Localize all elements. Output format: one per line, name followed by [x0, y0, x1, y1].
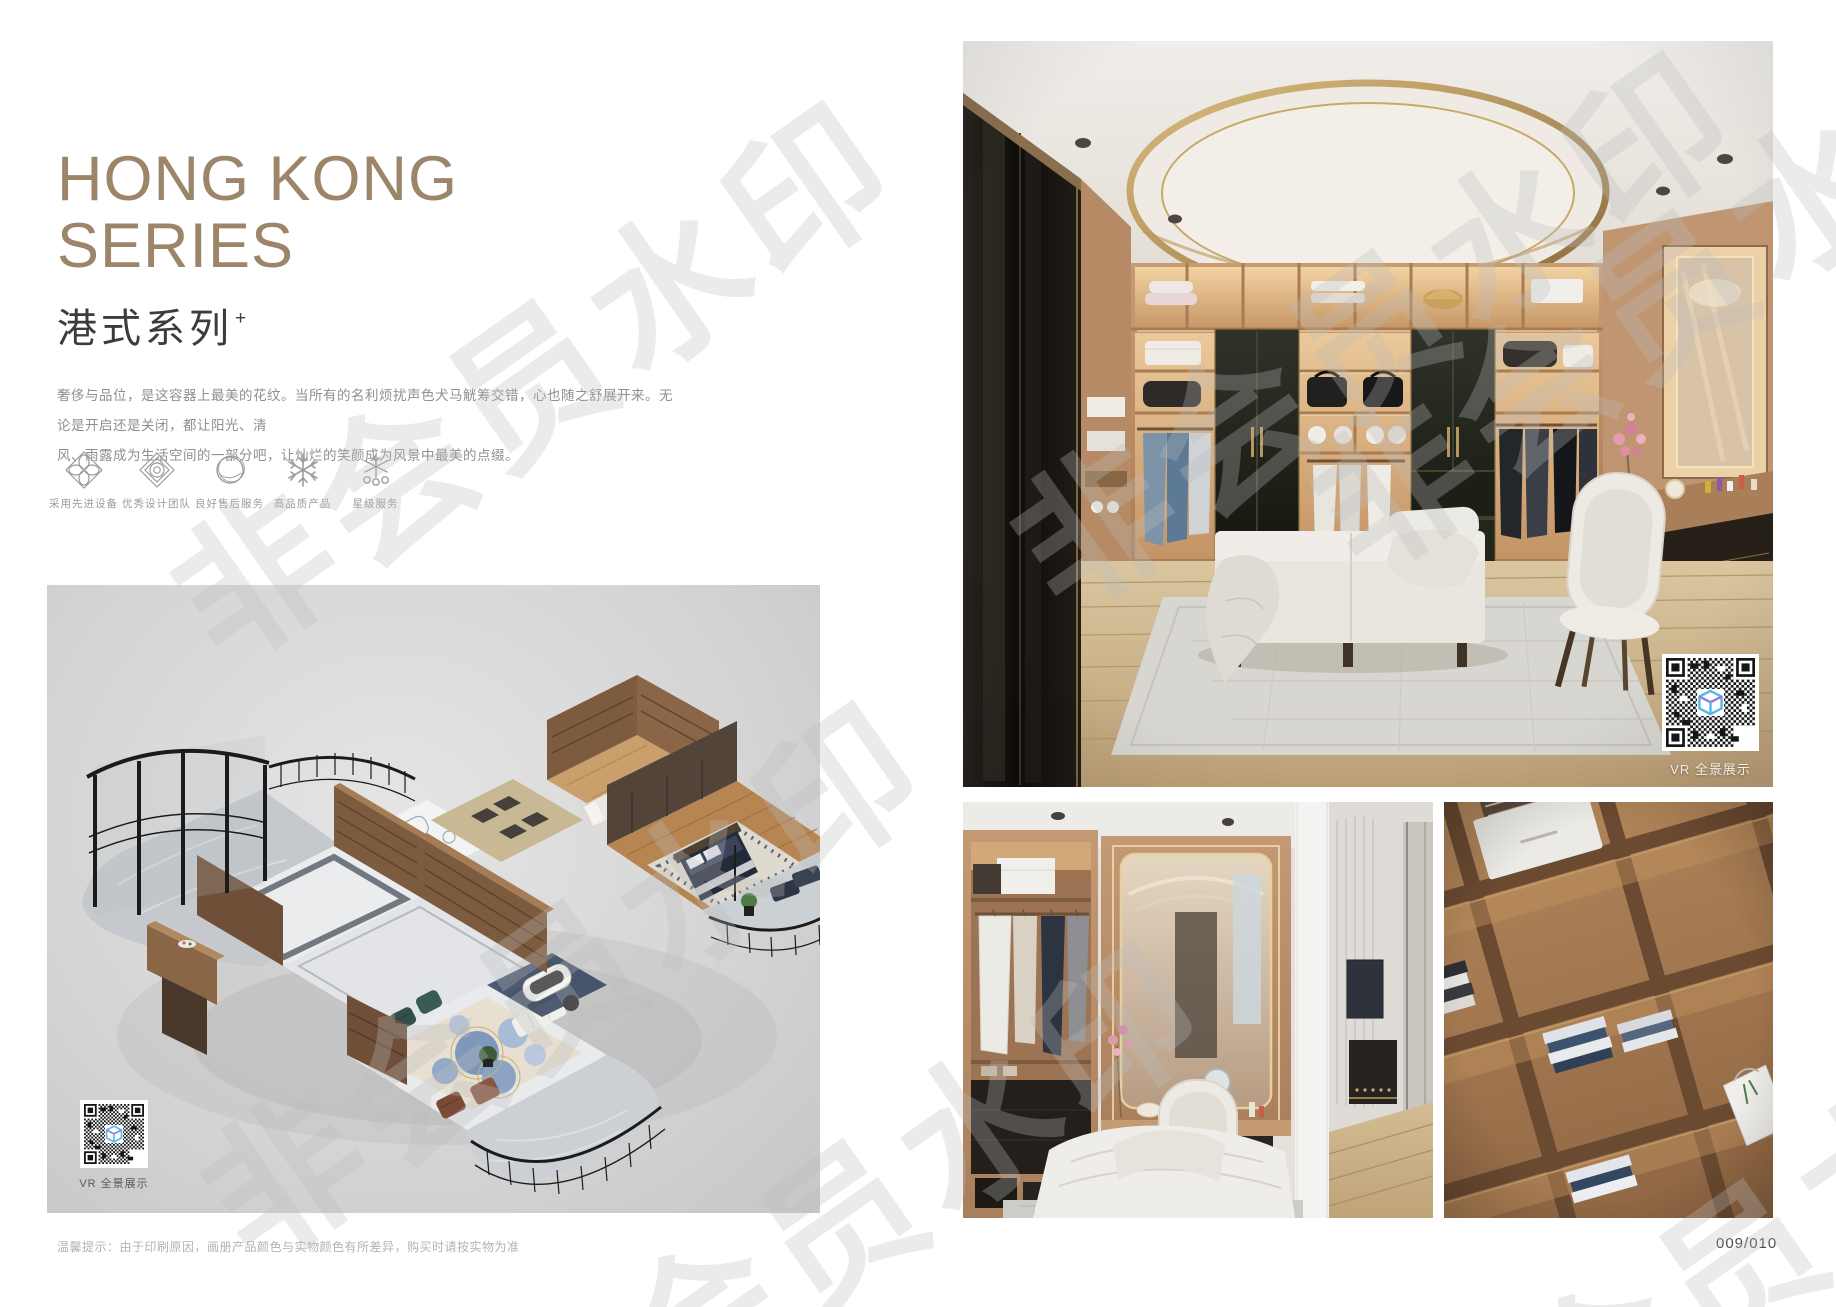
floorplan-render-panel: VR 全景展示	[47, 585, 820, 1213]
snowflake-icon	[283, 450, 323, 490]
catalog-page: HONG KONG SERIES 港式系列+ 奢侈与品位，是这容器上最美的花纹。…	[0, 0, 1836, 1307]
hanging-clothes	[979, 910, 1089, 1056]
feature-label: 良好售后服务	[193, 496, 266, 511]
description-line-1: 奢侈与品位，是这容器上最美的花纹。当所有的名利烦扰声色犬马觥筹交错，心也随之舒展…	[57, 388, 673, 433]
hero-walkin-closet-photo: VR 全景展示	[963, 41, 1773, 787]
dressing-table-photo	[963, 802, 1433, 1218]
feature-icons-row: 采用先进设备 优秀设计团队 良好售后服务	[47, 450, 412, 511]
shelf-closeup-photo	[1444, 802, 1773, 1218]
star-snowflake-icon	[356, 450, 396, 490]
feature-star-service: 星级服务	[339, 450, 412, 511]
corridor-artwork	[1347, 960, 1383, 1018]
feature-design-team: 优秀设计团队	[120, 450, 193, 511]
feature-after-sales: 良好售后服务	[193, 450, 266, 511]
isometric-floorplan-image	[47, 585, 820, 1213]
hero-qr-code	[1662, 654, 1759, 751]
title-line-1: HONG KONG	[57, 146, 458, 213]
floorplan-qr-code	[80, 1100, 148, 1168]
feature-high-quality: 高品质产品	[266, 450, 339, 511]
title-line-2: SERIES	[57, 213, 458, 280]
white-column	[1295, 802, 1329, 1218]
series-title-cn: 港式系列+	[57, 296, 458, 354]
feature-advanced-equipment: 采用先进设备	[47, 450, 120, 511]
hero-vr-label: VR 全景展示	[1660, 759, 1761, 778]
feature-label: 高品质产品	[266, 496, 339, 511]
series-header: HONG KONG SERIES 港式系列+	[57, 146, 458, 354]
feature-label: 优秀设计团队	[120, 496, 193, 511]
dressing-table-scene	[963, 802, 1433, 1218]
series-title-en: HONG KONG SERIES	[57, 146, 458, 280]
print-disclaimer: 温馨提示：由于印刷原因，画册产品颜色与实物颜色有所差异，购买时请按实物为准	[57, 1238, 520, 1255]
rosette-diamond-icon	[137, 450, 177, 490]
series-subtitle-text: 港式系列	[57, 307, 233, 351]
shelf-closeup-scene	[1444, 802, 1773, 1218]
feature-label: 星级服务	[339, 496, 412, 511]
petal-flower-diamond-icon	[64, 450, 104, 490]
page-number: 009/010	[1716, 1235, 1777, 1252]
corridor-sideboard	[1349, 1040, 1397, 1104]
hero-scene	[963, 41, 1773, 787]
feature-label: 采用先进设备	[47, 496, 120, 511]
subtitle-plus-mark: +	[235, 308, 250, 329]
double-ring-icon	[210, 450, 250, 490]
corridor-view	[1329, 802, 1433, 1218]
floorplan-vr-label: VR 全景展示	[72, 1175, 156, 1191]
